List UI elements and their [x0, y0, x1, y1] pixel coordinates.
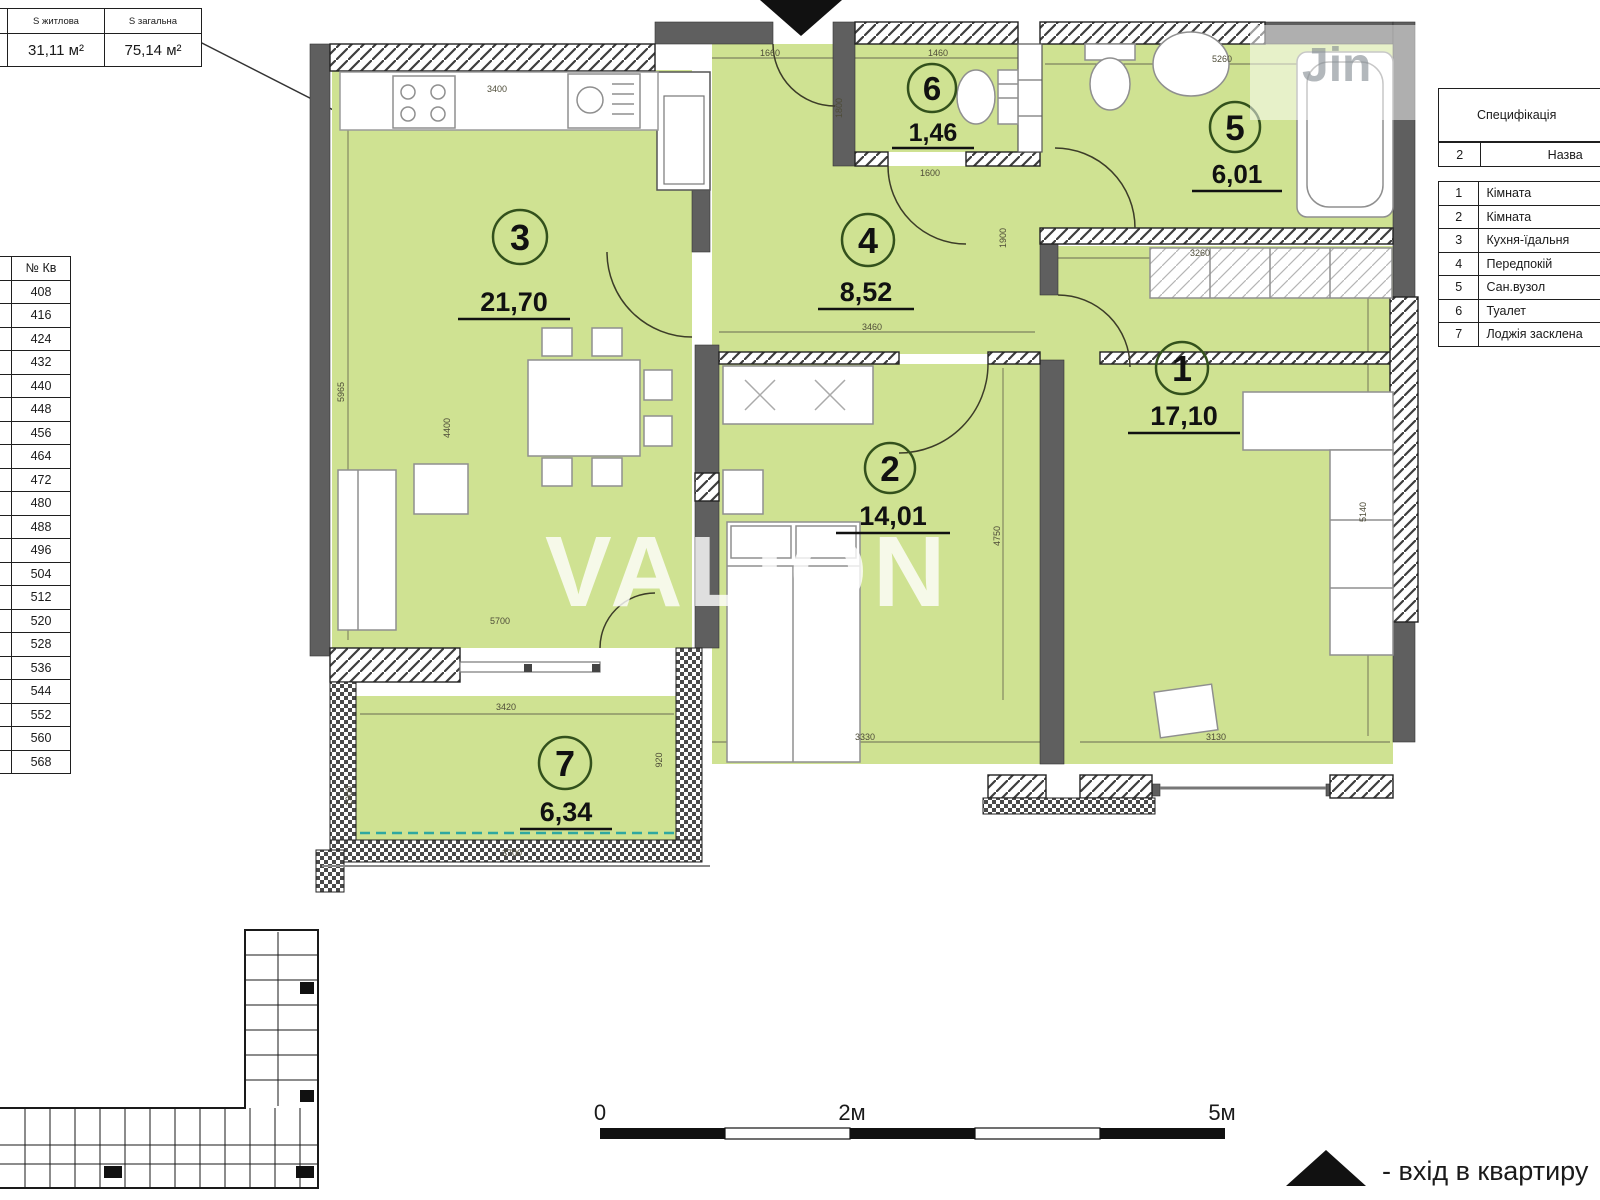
spec-header-num: 2	[1439, 143, 1481, 167]
scale-bar: 0 2м 5м	[594, 1100, 1236, 1139]
dim-label: 3420	[496, 702, 516, 712]
wc-toilet-icon	[957, 70, 1018, 124]
apartment-row: 21560	[0, 727, 71, 751]
dim-label: 3400	[487, 84, 507, 94]
dim-label: 3330	[855, 732, 875, 742]
spec-row: 6Туалет	[1439, 299, 1600, 323]
apartment-row: 14504	[0, 562, 71, 586]
scale-label-5m: 5м	[1208, 1100, 1235, 1125]
apartment-row: 22568	[0, 750, 71, 774]
svg-text:5: 5	[1225, 109, 1244, 148]
svg-text:6,34: 6,34	[540, 797, 593, 827]
apartment-row: 2408	[0, 280, 71, 304]
apartment-row: 13496	[0, 539, 71, 563]
apartment-row: 8456	[0, 421, 71, 445]
spec-row: 2Кімната	[1439, 205, 1600, 229]
spec-row: 3Кухня-їдальня	[1439, 229, 1600, 253]
dim-label: 4750	[992, 526, 1002, 546]
floorplan-page: { "summary_table": { "col_rooms_header":…	[0, 0, 1600, 1200]
summary-rooms-header: кімнат	[0, 9, 8, 34]
bathroom-sink-icon	[1153, 32, 1229, 96]
dim-label: 5260	[1212, 54, 1232, 64]
building-key-plan	[0, 930, 318, 1188]
svg-text:7: 7	[555, 743, 575, 784]
apartments-table: № Кв 2408 3416 4424 5432 6440 7448 8456 …	[0, 256, 71, 774]
dim-label: 5140	[1358, 502, 1368, 522]
apartment-row: 18536	[0, 656, 71, 680]
dim-label: 1900	[344, 786, 354, 806]
entrance-legend: - вхід в квартиру	[1286, 1150, 1589, 1186]
apartments-header: № Кв	[12, 257, 71, 281]
apartment-row: 15512	[0, 586, 71, 610]
specification-table: Специфікація 2 Назва 1Кімната 2Кімната 3…	[1438, 88, 1600, 347]
apartment-row: 12488	[0, 515, 71, 539]
dim-label: 3460	[862, 322, 882, 332]
svg-text:6: 6	[923, 70, 941, 107]
svg-text:6,01: 6,01	[1212, 159, 1263, 189]
specification-title: Специфікація	[1438, 88, 1600, 142]
svg-text:4: 4	[858, 220, 878, 261]
dim-label: 5965	[336, 382, 346, 402]
entrance-legend-text: - вхід в квартиру	[1382, 1156, 1589, 1186]
dim-label: 3130	[1206, 732, 1226, 742]
apartment-row: 19544	[0, 680, 71, 704]
apartment-row: 9464	[0, 445, 71, 469]
summary-total-value: 75,14 м²	[105, 34, 202, 67]
apartment-row: 16520	[0, 609, 71, 633]
spec-row: 4Передпокій	[1439, 252, 1600, 276]
dim-label: 4400	[442, 418, 452, 438]
tv-unit	[1154, 684, 1218, 738]
svg-text:21,70: 21,70	[480, 287, 548, 317]
dim-label: 5700	[490, 616, 510, 626]
summary-living-value: 31,11 м²	[8, 34, 105, 67]
svg-text:2: 2	[880, 450, 899, 489]
dim-label: 1460	[928, 48, 948, 58]
scale-label-2m: 2м	[838, 1100, 865, 1125]
scale-label-0: 0	[594, 1100, 606, 1125]
dim-label: 920	[654, 752, 664, 767]
watermark-valion: VALION	[545, 515, 951, 630]
spec-row: 5Сан.вузол	[1439, 276, 1600, 300]
summary-rooms-value: 2	[0, 34, 8, 67]
dim-label: 3700	[502, 848, 522, 858]
summary-total-header: S загальна	[105, 9, 202, 34]
nightstand	[723, 470, 763, 514]
dim-label: 1660	[760, 48, 780, 58]
apartment-row: 4424	[0, 327, 71, 351]
spec-row: 7Лоджія засклена	[1439, 323, 1600, 347]
spec-row: 1Кімната	[1439, 182, 1600, 206]
dim-label: 3260	[1190, 248, 1210, 258]
wardrobe-room2	[723, 366, 873, 424]
apartment-row: 20552	[0, 703, 71, 727]
stove-icon	[393, 76, 455, 128]
svg-text:1: 1	[1172, 348, 1192, 389]
apartment-row: 5432	[0, 351, 71, 375]
summary-living-header: S житлова	[8, 9, 105, 34]
svg-text:3: 3	[510, 217, 530, 258]
apartment-row: 6440	[0, 374, 71, 398]
summary-table: кімнат S житлова S загальна 2 31,11 м² 7…	[0, 8, 202, 67]
apartment-row: 17528	[0, 633, 71, 657]
svg-text:17,10: 17,10	[1150, 401, 1218, 431]
dim-label: 1800	[834, 98, 844, 118]
apartment-row: 3416	[0, 304, 71, 328]
svg-text:1,46: 1,46	[909, 119, 958, 147]
apartment-row: 7448	[0, 398, 71, 422]
kitchen-sink-icon	[568, 74, 640, 128]
dim-label: 1900	[998, 228, 1008, 248]
entrance-legend-arrow-icon	[1286, 1150, 1366, 1186]
apartment-row: 11480	[0, 492, 71, 516]
spec-header-name: Назва	[1481, 143, 1600, 167]
wardrobe-room1	[1150, 248, 1392, 298]
dim-label: 1600	[920, 168, 940, 178]
svg-text:8,52: 8,52	[840, 277, 893, 307]
apartment-row: 10472	[0, 468, 71, 492]
watermark-secondary: Jin	[1302, 38, 1371, 93]
